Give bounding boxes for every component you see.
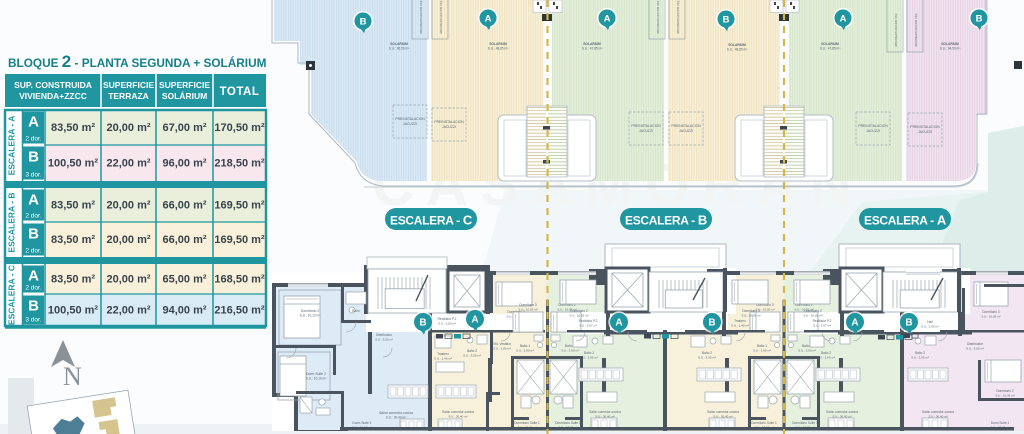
svg-text:Recibidor P.2: Recibidor P.2 xyxy=(579,319,598,323)
svg-text:65,00 m²: 65,00 m² xyxy=(162,274,206,286)
svg-text:PREINSTALACION: PREINSTALACION xyxy=(858,124,888,128)
svg-text:SOLARIUM: SOLARIUM xyxy=(728,43,746,47)
svg-text:IMPERMEABILIZACION DKQ: IMPERMEABILIZACION DKQ xyxy=(440,1,443,34)
svg-text:20,00 m²: 20,00 m² xyxy=(106,274,150,286)
svg-text:2 dor.: 2 dor. xyxy=(25,213,41,220)
svg-text:20,00 m²: 20,00 m² xyxy=(106,234,150,246)
svg-text:A: A xyxy=(851,318,858,329)
svg-text:20,00 m²: 20,00 m² xyxy=(106,200,150,212)
svg-text:Salón comedor-cocina: Salón comedor-cocina xyxy=(707,410,739,414)
svg-text:S.U.: 3,60 m²: S.U.: 3,60 m² xyxy=(921,325,939,329)
svg-text:S.U.: 10,05 m²: S.U.: 10,05 m² xyxy=(981,315,1000,319)
svg-text:Trastero: Trastero xyxy=(437,352,449,356)
svg-text:B: B xyxy=(28,226,39,243)
svg-text:Salón comedor-cocina: Salón comedor-cocina xyxy=(589,410,621,414)
svg-text:S.U.: 10,05 m²: S.U.: 10,05 m² xyxy=(741,314,760,318)
svg-text:B: B xyxy=(28,149,39,166)
svg-text:S.U.: 3,67 m²: S.U.: 3,67 m² xyxy=(813,324,831,328)
svg-text:B: B xyxy=(360,16,367,27)
svg-text:218,50 m²: 218,50 m² xyxy=(214,158,264,170)
svg-text:IMPERMEABILIZACION DKQ: IMPERMEABILIZACION DKQ xyxy=(915,14,918,47)
svg-text:2 dor.: 2 dor. xyxy=(25,248,41,255)
svg-text:Dormitorio Suite 1: Dormitorio Suite 1 xyxy=(751,421,777,425)
svg-text:Baño 2: Baño 2 xyxy=(821,351,831,355)
svg-text:PREINSTALACION: PREINSTALACION xyxy=(631,124,661,128)
svg-text:Dormitorio 2: Dormitorio 2 xyxy=(996,389,1014,393)
svg-text:Baño 1: Baño 1 xyxy=(520,344,530,348)
svg-text:SOLARIUM: SOLARIUM xyxy=(583,42,601,46)
svg-text:SOLARIUM: SOLARIUM xyxy=(390,42,408,46)
svg-text:SOLARIUM: SOLARIUM xyxy=(941,42,959,46)
svg-text:83,50 m²: 83,50 m² xyxy=(51,234,95,246)
svg-text:SOLARIUM: SOLARIUM xyxy=(821,42,839,46)
svg-text:B: B xyxy=(708,318,715,329)
svg-text:A: A xyxy=(28,268,39,285)
svg-text:Trastero: Trastero xyxy=(734,319,746,323)
svg-text:83,50 m²: 83,50 m² xyxy=(51,200,95,212)
svg-text:JACUZZI: JACUZZI xyxy=(639,129,653,133)
svg-text:83,50 m²: 83,50 m² xyxy=(51,122,95,134)
svg-text:169,50 m²: 169,50 m² xyxy=(214,234,264,246)
svg-text:IMPERMEABILIZACION DKQ: IMPERMEABILIZACION DKQ xyxy=(420,1,423,34)
svg-text:Salón comedor-cocina: Salón comedor-cocina xyxy=(379,411,413,415)
svg-text:Recibidor P.2: Recibidor P.2 xyxy=(813,319,832,323)
svg-text:SUPERFICIE: SUPERFICIE xyxy=(103,80,154,90)
svg-text:TERRAZA: TERRAZA xyxy=(108,91,149,101)
svg-text:Salón comedor-cocina: Salón comedor-cocina xyxy=(922,410,954,414)
svg-text:Dormitorio 3: Dormitorio 3 xyxy=(519,303,537,307)
svg-text:VIVIENDA+ZZCC: VIVIENDA+ZZCC xyxy=(19,91,87,101)
svg-text:S.U.: 3,60 m²: S.U.: 3,60 m² xyxy=(438,322,456,326)
svg-text:Baño 2: Baño 2 xyxy=(702,351,712,355)
svg-text:Dormitorio Suite 1: Dormitorio Suite 1 xyxy=(555,421,581,425)
svg-text:PREINSTALACION: PREINSTALACION xyxy=(434,120,464,124)
svg-text:ESCALERA - B: ESCALERA - B xyxy=(7,192,17,252)
svg-text:Recibidor P.2: Recibidor P.2 xyxy=(438,317,457,321)
svg-text:JACUZZI: JACUZZI xyxy=(918,130,932,134)
svg-text:PREINSTALACION: PREINSTALACION xyxy=(395,117,425,121)
svg-text:Dorm Suite 1: Dorm Suite 1 xyxy=(352,421,371,425)
svg-text:2 dor.: 2 dor. xyxy=(25,285,41,292)
svg-text:Dormitorio 2: Dormitorio 2 xyxy=(570,309,588,313)
svg-text:B: B xyxy=(419,318,426,329)
svg-text:S.U.: 1,40 m²: S.U.: 1,40 m² xyxy=(434,357,452,361)
svg-text:100,50 m²: 100,50 m² xyxy=(48,158,98,170)
svg-text:S.U.: 10,05 m²: S.U.: 10,05 m² xyxy=(803,314,822,318)
svg-text:Baño 2: Baño 2 xyxy=(915,351,925,355)
svg-text:S.U.: 10,05 m²: S.U.: 10,05 m² xyxy=(995,394,1014,398)
svg-text:ESCALERA - C: ESCALERA - C xyxy=(7,265,17,325)
svg-text:Dormitorio 3: Dormitorio 3 xyxy=(982,310,1000,314)
svg-text:JACUZZI: JACUZZI xyxy=(679,129,693,133)
svg-text:S.U.: 48,85 m²: S.U.: 48,85 m² xyxy=(727,48,748,52)
svg-text:S.U.: 47,85 m²: S.U.: 47,85 m² xyxy=(820,47,841,51)
svg-text:ESCALERA - A: ESCALERA - A xyxy=(864,213,947,228)
svg-text:Vtd. Vestidor: Vtd. Vestidor xyxy=(493,342,512,346)
svg-text:Salón comedor-cocina: Salón comedor-cocina xyxy=(442,410,474,414)
svg-text:66,00 m²: 66,00 m² xyxy=(162,234,206,246)
svg-text:ESCALERA - B: ESCALERA - B xyxy=(625,213,707,228)
svg-text:100,50 m²: 100,50 m² xyxy=(48,305,98,317)
svg-text:B: B xyxy=(723,14,730,25)
svg-text:JACUZZI: JACUZZI xyxy=(866,129,880,133)
svg-text:22,00 m²: 22,00 m² xyxy=(106,158,150,170)
svg-text:S.U.: 3,67 m²: S.U.: 3,67 m² xyxy=(579,324,597,328)
svg-text:ESCALERA - A: ESCALERA - A xyxy=(7,116,17,176)
svg-text:TOTAL: TOTAL xyxy=(220,86,260,98)
svg-text:S.U.: 3,95 m²: S.U.: 3,95 m² xyxy=(580,356,598,360)
svg-text:S.U.: 10,05 m²: S.U.: 10,05 m² xyxy=(518,308,537,312)
svg-text:S.U.: 10,05 m²: S.U.: 10,05 m² xyxy=(569,314,588,318)
svg-text:3 dor.: 3 dor. xyxy=(25,172,41,179)
svg-text:PREINSTALACION: PREINSTALACION xyxy=(910,125,940,129)
svg-text:A: A xyxy=(485,13,492,24)
svg-text:170,50 m²: 170,50 m² xyxy=(214,122,264,134)
svg-text:20,00 m²: 20,00 m² xyxy=(106,122,150,134)
svg-text:N: N xyxy=(63,362,82,391)
svg-text:Baño 2: Baño 2 xyxy=(467,349,477,353)
svg-text:S.U.: 1,80 m²: S.U.: 1,80 m² xyxy=(493,347,511,351)
svg-text:96,00 m²: 96,00 m² xyxy=(162,158,206,170)
svg-text:IMPERMEABILIZACION DKQ: IMPERMEABILIZACION DKQ xyxy=(677,1,680,34)
svg-text:SOLARIUM: SOLARIUM xyxy=(489,42,507,46)
svg-text:Dormitorio Suite 1: Dormitorio Suite 1 xyxy=(514,421,540,425)
svg-text:IMPERMEABILIZACION DKQ: IMPERMEABILIZACION DKQ xyxy=(895,14,898,47)
svg-text:S.U.: 10,10 m²: S.U.: 10,10 m² xyxy=(306,377,327,381)
svg-text:216,50 m²: 216,50 m² xyxy=(214,305,264,317)
svg-text:A: A xyxy=(604,13,611,24)
svg-text:2 dor.: 2 dor. xyxy=(25,136,41,143)
svg-text:3 dor.: 3 dor. xyxy=(25,317,41,324)
svg-text:S.U.: 3,90 m²: S.U.: 3,90 m² xyxy=(753,349,771,353)
svg-text:S.U.: 47,85 m²: S.U.: 47,85 m² xyxy=(582,47,603,51)
svg-text:Baño: Baño xyxy=(352,309,360,313)
svg-text:SOLÁRIUM: SOLÁRIUM xyxy=(162,91,207,101)
svg-text:S.U.: 3,90 m²: S.U.: 3,90 m² xyxy=(561,349,579,353)
svg-text:S.U.: 96,50 m²: S.U.: 96,50 m² xyxy=(389,47,410,51)
svg-text:A: A xyxy=(615,318,622,329)
svg-text:B: B xyxy=(905,318,912,329)
svg-text:JACUZZI: JACUZZI xyxy=(442,125,456,129)
svg-text:S.U.: 3,95 m²: S.U.: 3,95 m² xyxy=(817,356,835,360)
svg-text:PREINSTALACION: PREINSTALACION xyxy=(671,124,701,128)
svg-text:Distribuidor: Distribuidor xyxy=(376,333,393,337)
svg-text:Dormitorio Suite 1: Dormitorio Suite 1 xyxy=(792,421,818,425)
svg-text:B: B xyxy=(28,298,39,315)
svg-text:IMPERMEABILIZACION DKQ: IMPERMEABILIZACION DKQ xyxy=(657,1,660,34)
svg-text:Baño 2: Baño 2 xyxy=(584,351,594,355)
svg-text:Dorm Suite 1: Dorm Suite 1 xyxy=(991,421,1010,425)
svg-text:A: A xyxy=(28,192,39,209)
svg-text:S.U.: 48,85 m²: S.U.: 48,85 m² xyxy=(488,47,509,51)
svg-text:SUPERFICIE: SUPERFICIE xyxy=(159,80,210,90)
svg-text:67,00 m²: 67,00 m² xyxy=(162,122,206,134)
svg-text:S.U.: 1,40 m²: S.U.: 1,40 m² xyxy=(731,324,749,328)
svg-text:S.U.: 3,05 m²: S.U.: 3,05 m² xyxy=(966,347,984,351)
svg-text:S.U.: 3,95 m²: S.U.: 3,95 m² xyxy=(911,356,929,360)
svg-text:168,50 m²: 168,50 m² xyxy=(214,274,264,286)
svg-text:S.U.: 30,40 m²: S.U.: 30,40 m² xyxy=(448,415,467,419)
svg-text:JACUZZI: JACUZZI xyxy=(403,122,417,126)
svg-text:SUP. CONSTRUIDA: SUP. CONSTRUIDA xyxy=(14,80,92,90)
svg-text:S.U.: 3,95 m²: S.U.: 3,95 m² xyxy=(698,356,716,360)
svg-text:Distribuidor: Distribuidor xyxy=(967,342,984,346)
svg-text:Dorm Suite 2: Dorm Suite 2 xyxy=(306,372,326,376)
svg-text:83,50 m²: 83,50 m² xyxy=(51,274,95,286)
svg-text:S.U.: 3,90 m²: S.U.: 3,90 m² xyxy=(516,349,534,353)
svg-text:S.U.: 94,50 m²: S.U.: 94,50 m² xyxy=(940,47,961,51)
svg-text:66,00 m²: 66,00 m² xyxy=(162,200,206,212)
svg-text:Hall: Hall xyxy=(927,320,933,324)
svg-text:Baño 1: Baño 1 xyxy=(757,344,767,348)
svg-text:S.U.: 3,90 m²: S.U.: 3,90 m² xyxy=(798,349,816,353)
svg-text:ESCALERA - C: ESCALERA - C xyxy=(390,213,473,228)
svg-text:Dormitorio 3: Dormitorio 3 xyxy=(742,309,760,313)
svg-text:S.U.: 10,10 m²: S.U.: 10,10 m² xyxy=(300,314,321,318)
svg-text:Dormitorio 2: Dormitorio 2 xyxy=(301,309,320,313)
svg-text:A: A xyxy=(28,114,39,131)
svg-text:Dormitorio 2: Dormitorio 2 xyxy=(804,309,822,313)
svg-text:22,00 m²: 22,00 m² xyxy=(106,305,150,317)
svg-text:A: A xyxy=(471,315,478,326)
svg-text:94,00 m²: 94,00 m² xyxy=(162,305,206,317)
svg-text:S.U.: 3,60 m²: S.U.: 3,60 m² xyxy=(375,338,393,342)
svg-text:A: A xyxy=(840,13,847,24)
svg-text:Salón comedor-cocina: Salón comedor-cocina xyxy=(826,410,858,414)
svg-text:169,50 m²: 169,50 m² xyxy=(214,200,264,212)
svg-text:S.U.: 3,95 m²: S.U.: 3,95 m² xyxy=(463,354,481,358)
svg-text:B: B xyxy=(976,13,983,24)
